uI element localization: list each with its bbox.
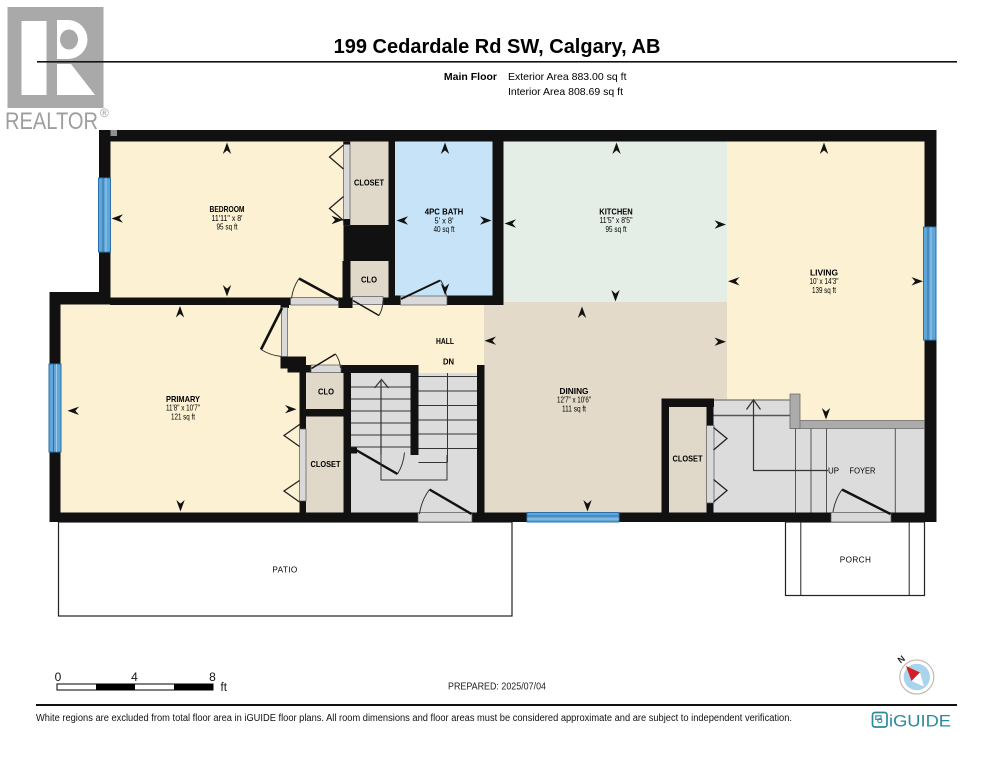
- svg-text:0: 0: [55, 670, 62, 684]
- svg-text:DN: DN: [443, 358, 454, 367]
- svg-text:DINING: DINING: [560, 387, 589, 396]
- svg-text:111 sq ft: 111 sq ft: [562, 404, 587, 413]
- svg-text:iGUIDE: iGUIDE: [889, 712, 951, 731]
- svg-text:LIVING: LIVING: [810, 269, 838, 278]
- svg-text:CLOSET: CLOSET: [354, 179, 384, 188]
- svg-text:Interior Area 808.69 sq ft: Interior Area 808.69 sq ft: [508, 86, 623, 98]
- svg-text:PORCH: PORCH: [840, 556, 872, 565]
- svg-text:8: 8: [209, 670, 216, 684]
- svg-text:Exterior Area 883.00 sq ft: Exterior Area 883.00 sq ft: [508, 71, 627, 83]
- svg-text:121 sq ft: 121 sq ft: [171, 412, 196, 421]
- svg-text:FOYER: FOYER: [850, 467, 876, 476]
- svg-text:HALL: HALL: [436, 337, 454, 346]
- svg-text:199 Cedardale Rd SW, Calgary,: 199 Cedardale Rd SW, Calgary, AB: [334, 36, 661, 58]
- svg-text:PRIMARY: PRIMARY: [166, 395, 200, 404]
- svg-text:ft: ft: [221, 682, 228, 694]
- svg-text:®: ®: [100, 106, 109, 120]
- svg-text:95 sq ft: 95 sq ft: [606, 225, 628, 234]
- svg-text:40 sq ft: 40 sq ft: [434, 225, 456, 234]
- svg-text:4PC BATH: 4PC BATH: [425, 208, 464, 217]
- svg-text:BEDROOM: BEDROOM: [210, 205, 245, 214]
- svg-text:UP: UP: [828, 467, 840, 476]
- svg-text:CLO: CLO: [361, 276, 377, 285]
- svg-text:CLO: CLO: [318, 388, 334, 397]
- svg-text:95 sq ft: 95 sq ft: [217, 223, 239, 232]
- svg-text:4: 4: [131, 670, 138, 684]
- svg-text:White regions are excluded fro: White regions are excluded from total fl…: [36, 713, 792, 724]
- svg-text:CLOSET: CLOSET: [311, 460, 341, 469]
- svg-text:PREPARED: 2025/07/04: PREPARED: 2025/07/04: [448, 681, 546, 693]
- svg-text:CLOSET: CLOSET: [673, 455, 703, 464]
- svg-text:KITCHEN: KITCHEN: [599, 208, 633, 217]
- svg-text:PATIO: PATIO: [272, 566, 297, 575]
- svg-text:11'11" x 8': 11'11" x 8': [212, 214, 243, 223]
- svg-text:REALTOR: REALTOR: [5, 108, 98, 135]
- svg-text:Main Floor: Main Floor: [444, 71, 497, 83]
- svg-text:139 sq ft: 139 sq ft: [812, 286, 837, 295]
